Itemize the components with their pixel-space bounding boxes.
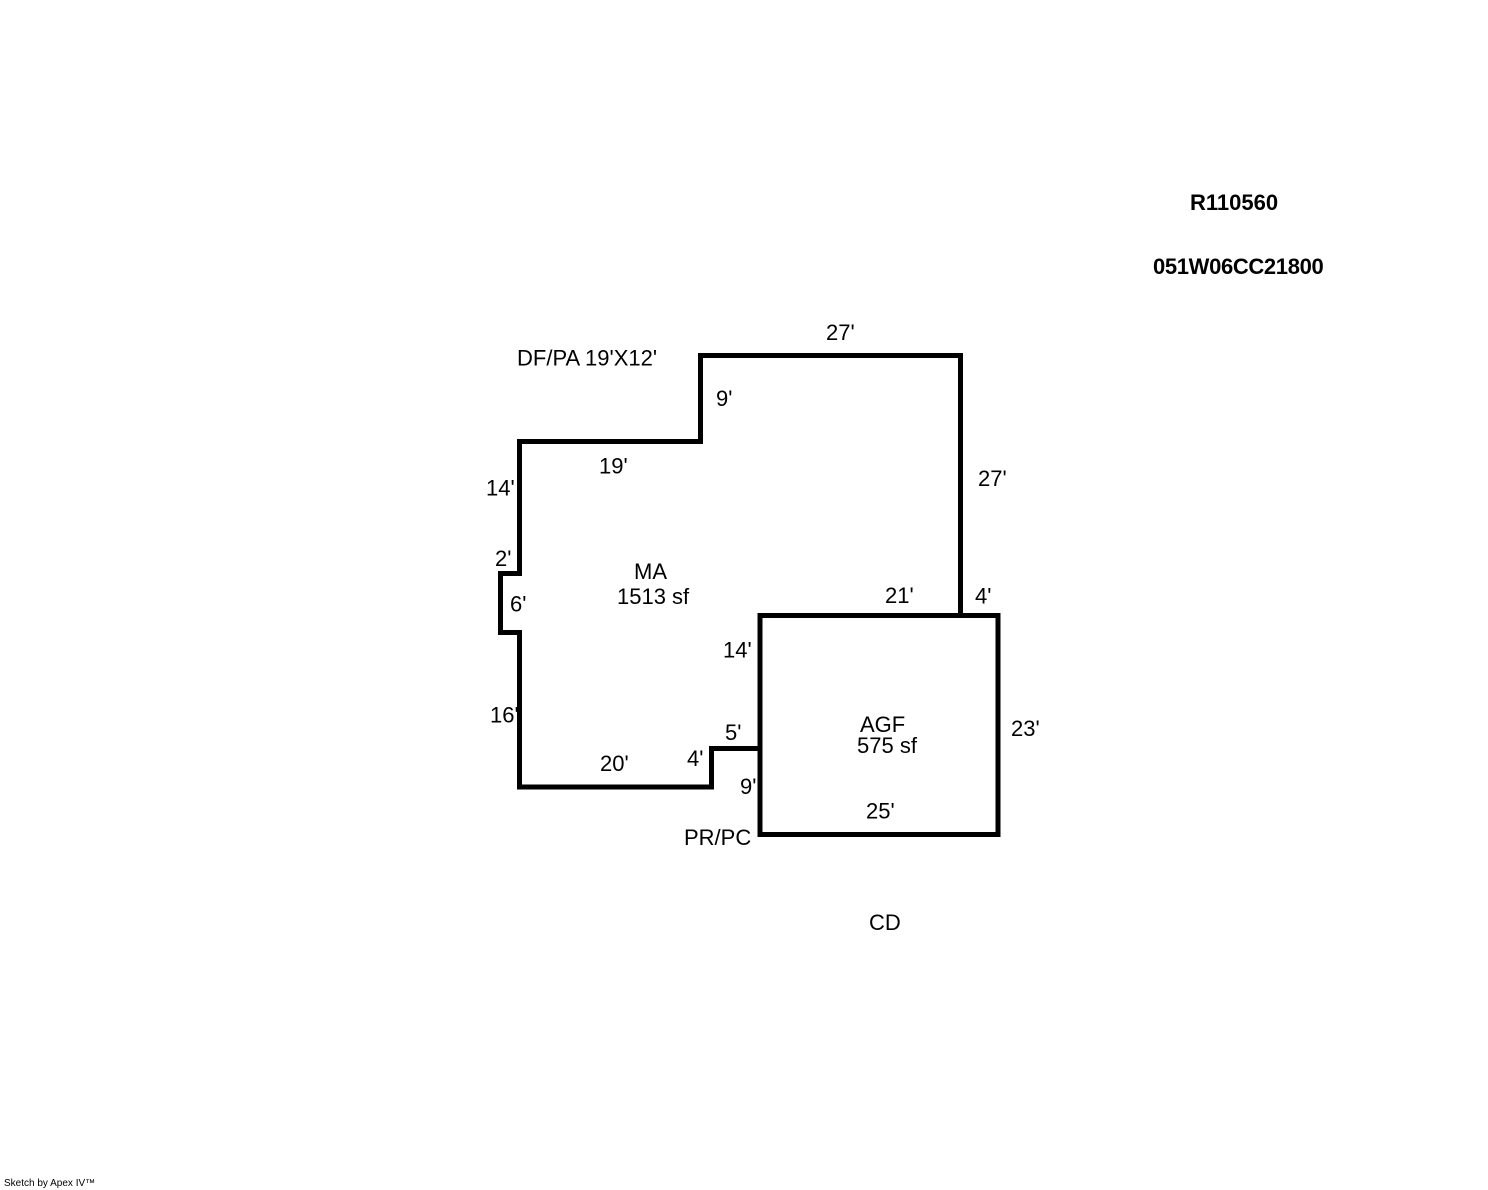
svg-text:CD: CD: [869, 910, 901, 935]
svg-text:051W06CC21800: 051W06CC21800: [1153, 254, 1323, 279]
svg-text:6': 6': [510, 592, 526, 617]
svg-text:DF/PA 19'X12': DF/PA 19'X12': [517, 346, 657, 371]
svg-text:23': 23': [1011, 716, 1040, 741]
svg-text:20': 20': [600, 751, 629, 776]
svg-text:2': 2': [495, 546, 511, 571]
svg-text:9': 9': [740, 774, 756, 799]
svg-text:25': 25': [866, 799, 895, 824]
svg-text:Sketch by Apex IV™: Sketch by Apex IV™: [4, 1178, 95, 1189]
svg-text:575 sf: 575 sf: [857, 733, 918, 758]
svg-text:MA: MA: [634, 559, 667, 584]
svg-text:14': 14': [723, 638, 752, 663]
svg-text:19': 19': [599, 454, 628, 479]
svg-text:27': 27': [978, 466, 1007, 491]
svg-text:4': 4': [975, 584, 991, 609]
svg-text:14': 14': [486, 476, 515, 501]
svg-text:5': 5': [725, 720, 741, 745]
svg-text:4': 4': [687, 746, 703, 771]
svg-text:16': 16': [490, 703, 519, 728]
svg-text:27': 27': [826, 320, 855, 345]
svg-text:R110560: R110560: [1190, 190, 1278, 215]
svg-text:PR/PC: PR/PC: [684, 825, 751, 850]
svg-text:9': 9': [716, 386, 732, 411]
svg-text:1513 sf: 1513 sf: [617, 584, 690, 609]
svg-text:21': 21': [885, 583, 914, 608]
